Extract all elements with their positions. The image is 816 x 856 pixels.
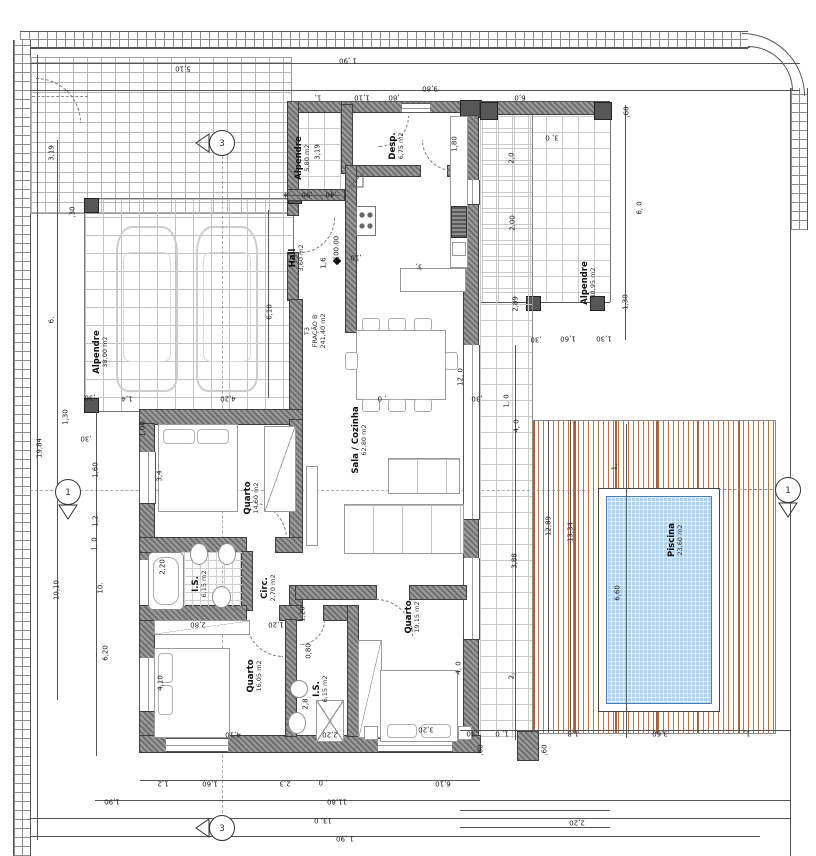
dimension-label: ,30 [530, 336, 541, 343]
dimension-label: 100.00 [334, 236, 341, 261]
dimension-label: 2,20 [569, 819, 585, 826]
dimension-label: 1,10 [354, 94, 370, 101]
dimension-label: 13, 0 [314, 817, 332, 824]
dimension-label: 6,10 [435, 780, 451, 787]
dimension-label: 6,20 [103, 645, 110, 661]
dimension-label: 1,8 [567, 730, 578, 737]
dimension-label: 6, 0 [637, 201, 644, 214]
dimension-label: 1,6 [321, 257, 328, 268]
dimension-label: 1,2 [93, 515, 100, 526]
dimension-label: 4, 0 [456, 661, 463, 674]
dimension-label: 12, 0 [458, 368, 465, 386]
dimension-label: 1,30 [596, 335, 612, 342]
dimension-label: 1, 0 [92, 537, 99, 550]
dimension-label: ,30 [84, 394, 95, 401]
dimension-label: 3,19 [49, 145, 56, 161]
dimension-label: 6,0 [514, 94, 525, 101]
dimension-label: 1,80 [452, 136, 459, 152]
dimension-label: 4,10 [225, 731, 241, 738]
dimension-label: 3,19 [315, 144, 322, 160]
dimension-label: 5,10 [175, 65, 191, 72]
dimension-label: 1,30 [63, 409, 70, 425]
dimension-label: ,60 [624, 106, 631, 117]
dimension-label: 4,10 [158, 675, 165, 691]
dimension-label: 2,80 [190, 621, 206, 628]
dimension-label: 2,20 [322, 731, 338, 738]
dimension-label: , 0 [378, 395, 387, 402]
dimension-label: 13,34 [568, 522, 575, 542]
dimension-label: 1, 0 [504, 394, 511, 407]
dimension-label: 1,30 [623, 294, 630, 310]
dimension-label: 1, [315, 94, 322, 101]
dimension-label: 2,20 [160, 559, 167, 575]
dimension-label: 0,80 [306, 643, 313, 659]
dimension-label: ,30 [80, 435, 91, 442]
dimension-label: 1 ,90 [336, 835, 354, 842]
dimension-label: 2,8 [303, 698, 310, 709]
dimension-label: 4, 0 [514, 419, 521, 432]
dimension-label: 1,60 [560, 335, 576, 342]
floor-plan-sheet: 3 3 1 1 Alpendre5,80 m2Desp.6,75 m2Hall3… [0, 0, 816, 856]
dimension-labels-layer: 5,101 ,909,801,1,10,806,03, 0,601,802,02… [0, 0, 816, 856]
dimension-label: ,10 [350, 254, 361, 261]
dimension-label: 1, 0 [495, 730, 508, 737]
dimension-label: 12,89 [546, 516, 553, 536]
dimension-label: 6,60 [615, 585, 622, 601]
dimension-label: 2,89 [513, 296, 520, 312]
dimension-label: 10,10 [54, 580, 61, 600]
dimension-label: ,90 [301, 191, 312, 198]
dimension-label: ,30 [471, 395, 482, 402]
dimension-label: 3,88 [512, 553, 519, 569]
dimension-label: 1,20 [300, 606, 307, 622]
dimension-label: 1,2 [157, 780, 168, 787]
dimension-label: 1,60 [202, 780, 218, 787]
dimension-label: 3, [416, 263, 423, 270]
dimension-label: 2,3 [279, 780, 290, 787]
dimension-label: 3, 0 [545, 134, 558, 141]
dimension-label: 10. [98, 582, 105, 593]
dimension-label: ,30 [466, 730, 477, 737]
dimension-label: 3,60 [652, 730, 668, 737]
dimension-label: 6, [49, 317, 56, 324]
dimension-label: 9,80 [422, 85, 438, 92]
dimension-label: 3,4 [157, 470, 164, 481]
dimension-label: 1 ,90 [339, 57, 357, 64]
dimension-label: 19,84 [37, 438, 44, 458]
dimension-label: 1, [612, 464, 619, 471]
dimension-label: ,80 [388, 94, 399, 101]
dimension-label: 2, [509, 673, 516, 680]
dimension-label: 1,00 [140, 421, 147, 437]
dimension-label: ,30 [70, 206, 77, 217]
dimension-label: 1,4 [121, 395, 132, 402]
dimension-label: ,60 [478, 744, 485, 755]
dimension-label: 6,10 [267, 304, 274, 320]
dimension-label: , 0 [319, 779, 328, 786]
dimension-label: 1, [744, 730, 751, 737]
dimension-label: ,60 [542, 744, 549, 755]
dimension-label: 11,80 [327, 798, 347, 805]
dimension-label: ,4 [284, 191, 291, 198]
dimension-label: 2,00 [510, 215, 517, 231]
dimension-label: 1,60 [93, 462, 100, 478]
dimension-label: 1,20 [268, 621, 284, 628]
dimension-label: ,40 [325, 191, 336, 198]
dimension-label: 1,90 [104, 798, 120, 805]
dimension-label: 3,20 [418, 726, 434, 733]
dimension-label: 4,20 [220, 395, 236, 402]
dimension-label: 2,0 [509, 152, 516, 163]
